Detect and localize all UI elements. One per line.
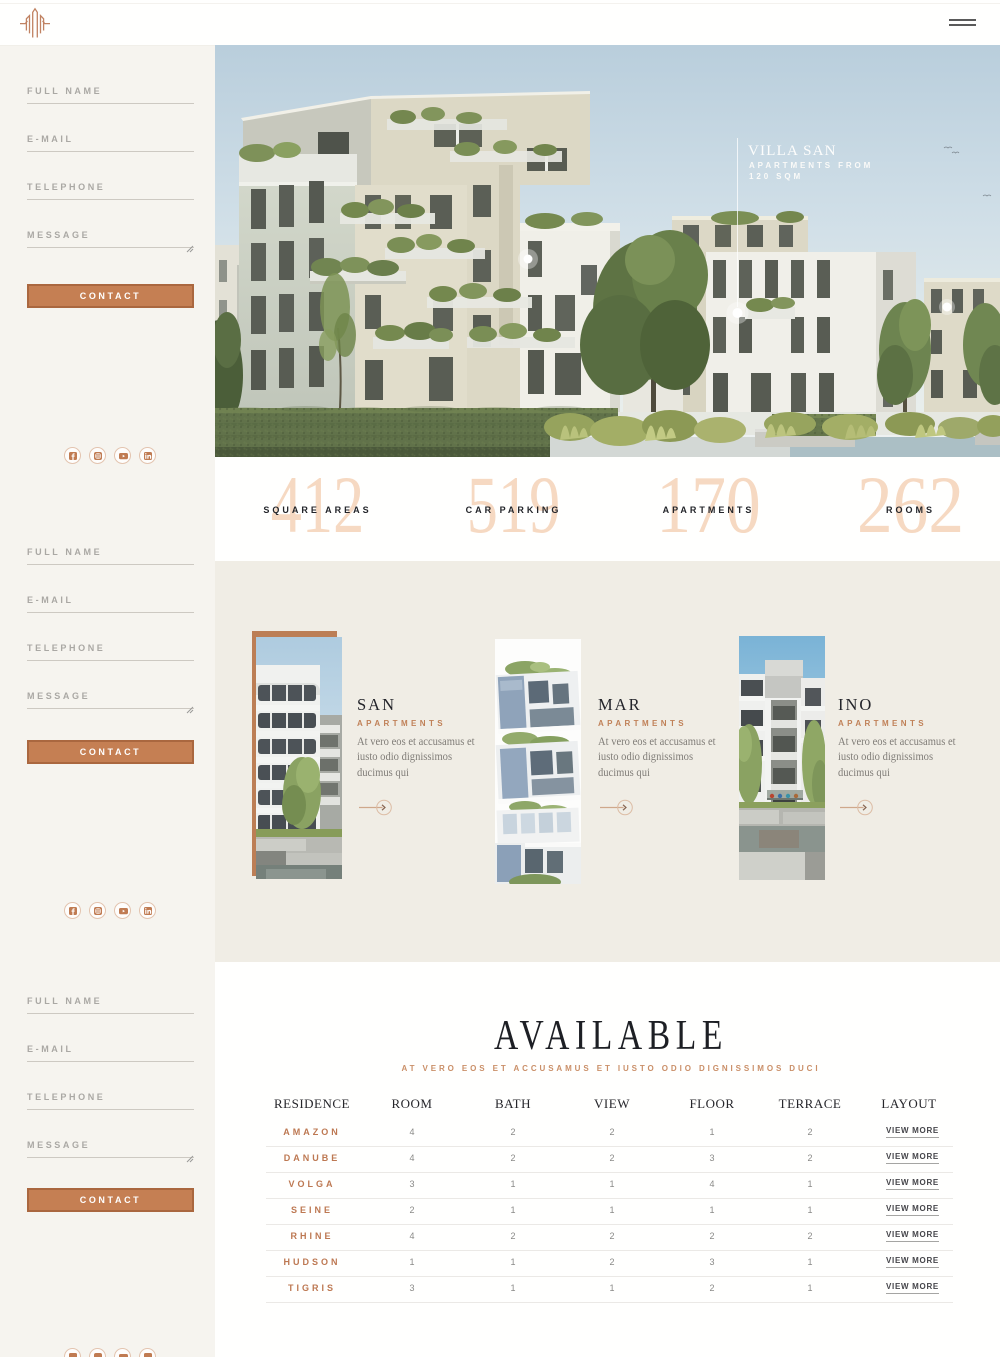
svg-text:120 SQM: 120 SQM [749,172,803,181]
svg-text:VILLA SAN: VILLA SAN [748,143,837,159]
svg-text:APARTMENTS FROM: APARTMENTS FROM [749,161,873,170]
